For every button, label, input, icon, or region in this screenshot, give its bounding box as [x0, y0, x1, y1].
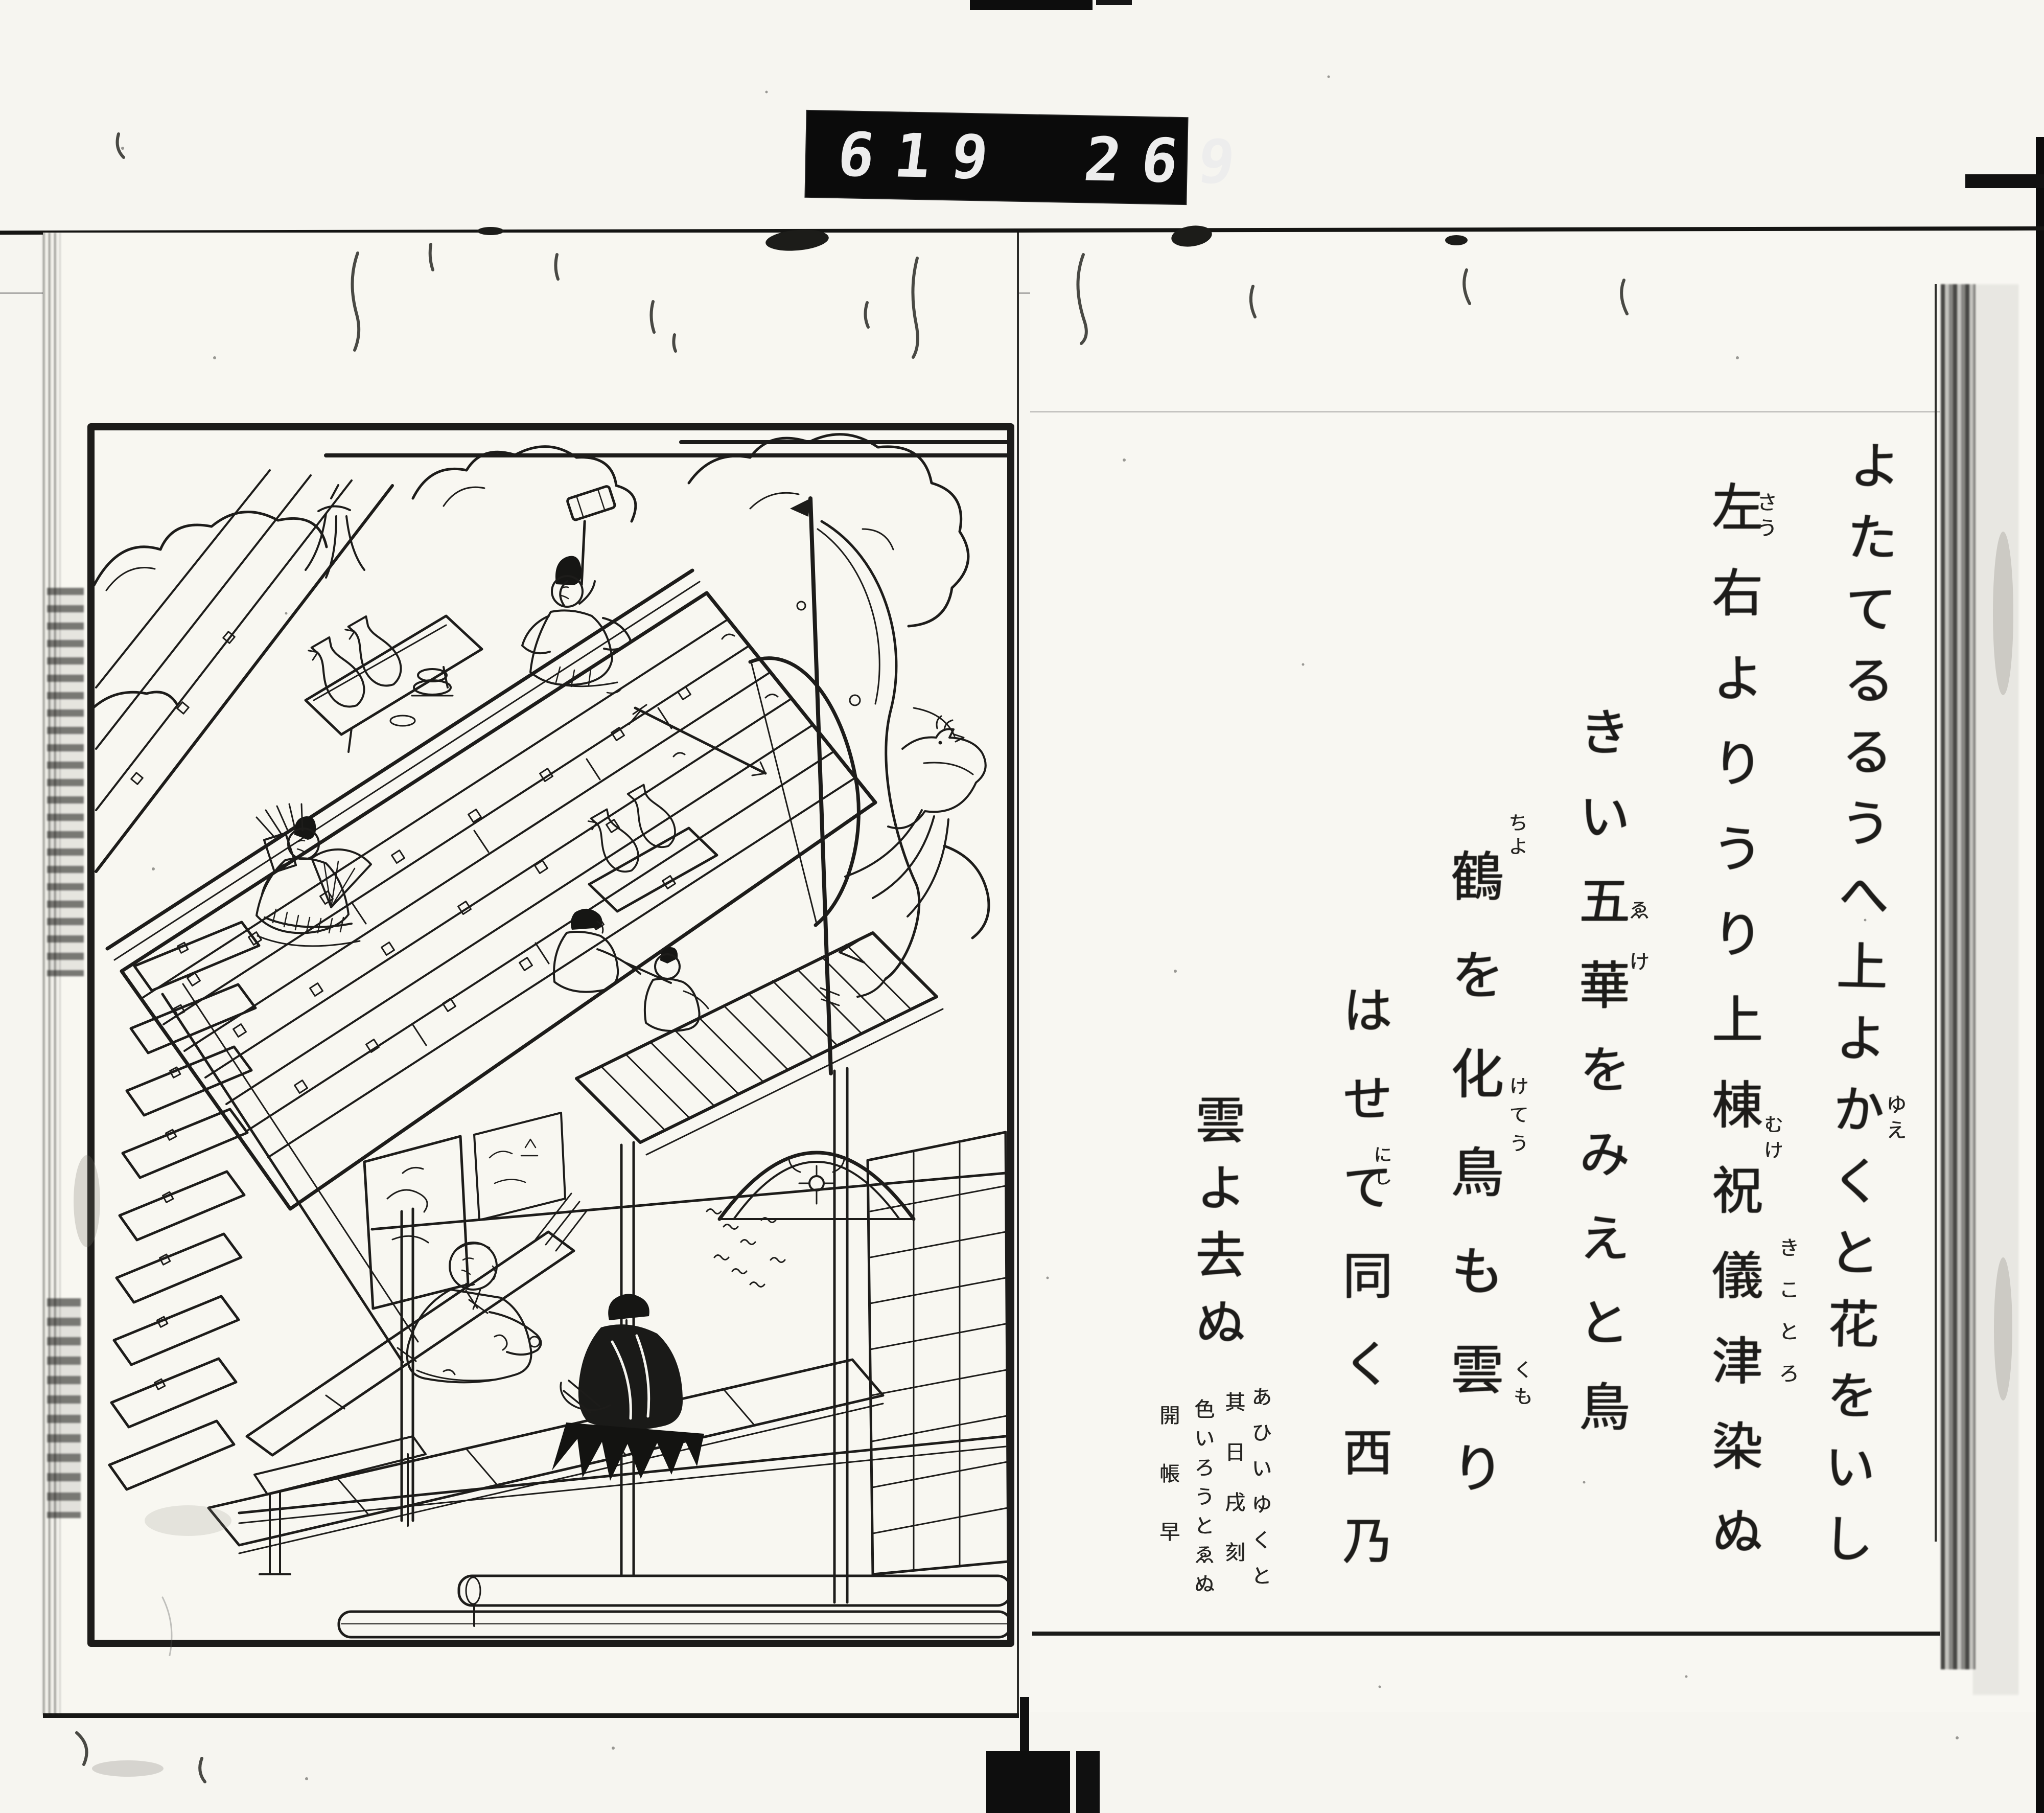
furigana-note: ちよ — [1502, 813, 1530, 860]
text-column-3: きい五華をみえと鳥 — [1563, 705, 1637, 1464]
furigana-note: にし — [1367, 1145, 1394, 1190]
text-column-5: はせて同く西乃 — [1327, 984, 1399, 1603]
stacked-logs — [339, 1576, 1011, 1637]
open-fan — [312, 850, 371, 907]
carpenter-figures — [554, 909, 708, 1031]
book-clamp-slit — [1070, 1751, 1075, 1813]
mallet-figure — [522, 486, 635, 693]
scan-edge-tab-top-small — [1096, 0, 1132, 5]
right-page-right-edge — [1935, 284, 1937, 1542]
lumber-stairs — [109, 922, 418, 1489]
counter-digits-left: 619 — [833, 119, 1012, 193]
microfilm-frame-counter: 619 269 — [805, 111, 1187, 204]
margin-bleed-text-lower — [47, 1298, 81, 1518]
right-page-bottom-edge — [1032, 1632, 1940, 1636]
book-clamp-right — [1076, 1751, 1100, 1813]
scan-edge-tab-top — [970, 0, 1093, 10]
furigana-note: むけ — [1758, 1114, 1786, 1165]
annotation-line: 色いろうとゑぬ — [1188, 1398, 1217, 1602]
scan-edge-right-corner — [1965, 174, 2044, 188]
scanned-book-spread: 619 269 — [0, 0, 2044, 1813]
book-clamp-stem — [1020, 1697, 1029, 1754]
furigana-note: きことろ — [1772, 1237, 1802, 1405]
furigana-note: ゑけ — [1622, 900, 1652, 1002]
phoenix-bird — [845, 716, 986, 916]
furigana-note: けてう — [1503, 1076, 1531, 1162]
right-page-top-edge — [1030, 411, 1940, 412]
text-column-6: 雲よ去ぬ — [1179, 1094, 1252, 1364]
small-birds — [707, 1209, 785, 1287]
banner-bow-streamer — [750, 498, 919, 1073]
scan-edge-right-band — [2036, 137, 2044, 1813]
sake-bottle — [342, 613, 409, 694]
annotation-line: あひいゆくと — [1245, 1386, 1274, 1601]
gutter-bleed-band — [1941, 284, 1976, 1669]
margin-bleed-text-upper — [47, 588, 84, 976]
illustration-frame — [91, 427, 1011, 1643]
text-column-2: 左右よりうり上棟祝儀津染ぬ — [1695, 480, 1770, 1590]
folding-screen — [364, 1113, 587, 1309]
annotation-line: 開帳早 — [1153, 1405, 1182, 1579]
gutter-noise-halo — [1973, 284, 2019, 1695]
interior-attendant — [552, 1294, 704, 1481]
lattice-wall — [868, 1132, 1008, 1574]
ridgepole-ceremony-illustration — [86, 414, 1016, 1656]
veranda-deck — [208, 1360, 883, 1574]
furigana-note: くも — [1507, 1360, 1536, 1413]
text-column-4: 鶴を化鳥も雲り — [1434, 848, 1511, 1539]
sake-bottle-table — [305, 613, 482, 752]
ceremonial-arrow — [629, 705, 765, 775]
furigana-note: さう — [1750, 492, 1780, 543]
ramp-plank — [247, 1232, 574, 1455]
bow — [750, 658, 858, 925]
furigana-note: ゆえ — [1879, 1094, 1909, 1145]
sake-bottle — [305, 634, 372, 715]
left-page-bottom-edge — [43, 1713, 1019, 1718]
ground-mist — [145, 1505, 275, 1656]
counter-digits-right: 269 — [1081, 124, 1260, 197]
annotation-line: 其日戌刻 — [1218, 1391, 1248, 1592]
falling-petals — [673, 602, 860, 756]
book-clamp — [986, 1751, 1070, 1813]
archer-figure — [257, 804, 371, 946]
